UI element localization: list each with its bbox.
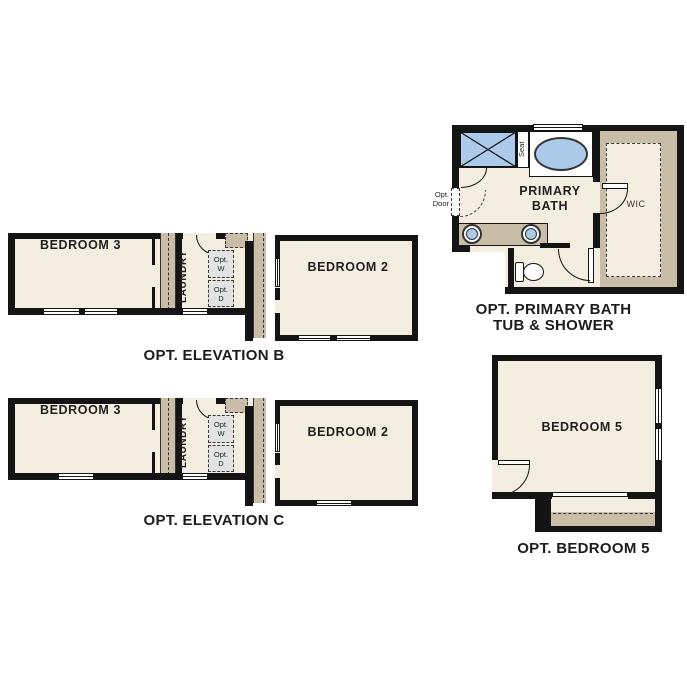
sink	[521, 224, 541, 244]
window	[298, 335, 331, 341]
wall	[8, 473, 248, 480]
wall	[152, 452, 155, 475]
caption-bedroom5: OPT. BEDROOM 5	[480, 540, 687, 557]
shower-glass-icon	[459, 131, 517, 168]
wall	[492, 355, 498, 460]
wall	[152, 233, 155, 265]
dryer-label-line1: Opt.	[214, 285, 228, 294]
washer-label-line2: W	[217, 264, 224, 273]
opt-door-label: Opt. Door	[422, 190, 449, 208]
dashed-line	[553, 513, 653, 514]
room-label-wic: WIC	[616, 199, 656, 209]
room-label-bedroom3: BEDROOM 3	[23, 238, 138, 252]
room-label-bedroom2: BEDROOM 2	[293, 425, 403, 439]
window	[43, 308, 80, 315]
wall	[492, 355, 662, 361]
wall	[628, 492, 662, 499]
optional-door-opening	[451, 188, 460, 216]
wall	[152, 398, 155, 430]
window	[182, 308, 208, 315]
plan-elevation-c: Opt. W Opt. D BEDROOM 3 BEDROOM 2 LAUNDR…	[8, 398, 420, 533]
window	[275, 423, 280, 452]
room-label-bedroom3: BEDROOM 3	[23, 403, 138, 417]
wall	[245, 241, 253, 341]
toilet-bowl	[523, 263, 544, 281]
wall	[593, 213, 600, 248]
wall	[412, 400, 418, 506]
wall	[152, 287, 155, 310]
washer-box: Opt. W	[208, 250, 234, 278]
bathtub	[534, 137, 588, 171]
washer-box: Opt. W	[208, 415, 234, 443]
wall	[508, 248, 514, 287]
dashed-line	[168, 233, 169, 310]
sink-basin	[525, 228, 537, 240]
room-label-laundry: LAUNDRY	[178, 247, 192, 307]
wall	[275, 400, 418, 406]
wall	[535, 526, 662, 532]
window	[275, 258, 280, 287]
floor-plan-sheet: Opt. W Opt. D BEDROOM 3 BEDROOM 2 LAUNDR…	[0, 0, 687, 687]
dryer-label-line2: D	[218, 294, 223, 303]
wall-chase	[253, 233, 266, 338]
wall	[8, 398, 15, 480]
wall	[275, 235, 418, 241]
dashed-line	[168, 398, 169, 475]
plan-primary-bath: Seat WIC Opt. Door PRIMARY	[420, 110, 687, 338]
wall	[245, 406, 253, 506]
plan-bedroom5: BEDROOM 5 OPT. BEDROOM 5	[480, 350, 687, 562]
dashed-line	[263, 398, 264, 503]
sink	[462, 224, 482, 244]
dryer-label-line1: Opt.	[214, 450, 228, 459]
washer-label-line2: W	[217, 429, 224, 438]
window	[182, 473, 208, 480]
wall	[275, 288, 280, 300]
room-label-bedroom2: BEDROOM 2	[293, 260, 403, 274]
window	[316, 500, 352, 506]
wall	[275, 453, 280, 465]
seat-label: Seat	[517, 133, 529, 166]
closet-shelving	[551, 512, 655, 526]
wall	[540, 243, 570, 248]
window	[58, 473, 94, 480]
room-fill	[275, 400, 418, 506]
dryer-box: Opt. D	[208, 445, 234, 472]
wall	[535, 492, 551, 529]
dashed-line	[263, 233, 264, 338]
window	[336, 335, 371, 341]
window	[655, 388, 662, 424]
wall	[452, 125, 459, 188]
wall	[8, 233, 15, 315]
window	[655, 428, 662, 461]
wall-chase	[253, 398, 266, 503]
caption-elevation-c: OPT. ELEVATION C	[8, 512, 420, 529]
wall	[593, 125, 600, 182]
closet-opening	[552, 492, 628, 497]
room-label-bedroom5: BEDROOM 5	[527, 420, 637, 434]
room-fill	[275, 235, 418, 341]
room-label-primary-bath: PRIMARY BATH	[480, 184, 620, 214]
plan-elevation-b: Opt. W Opt. D BEDROOM 3 BEDROOM 2 LAUNDR…	[8, 233, 420, 368]
sink-basin	[466, 228, 478, 240]
washer-label-line1: Opt.	[214, 255, 228, 264]
wall	[452, 245, 470, 252]
caption-primary-bath: OPT. PRIMARY BATH TUB & SHOWER	[420, 302, 687, 334]
room-label-laundry: LAUNDRY	[178, 412, 192, 472]
window	[533, 124, 583, 131]
washer-label-line1: Opt.	[214, 420, 228, 429]
wall	[412, 235, 418, 341]
dryer-box: Opt. D	[208, 280, 234, 307]
caption-elevation-b: OPT. ELEVATION B	[8, 347, 420, 364]
wall	[677, 125, 684, 294]
dryer-label-line2: D	[218, 459, 223, 468]
wall	[505, 287, 684, 294]
window	[84, 308, 118, 315]
